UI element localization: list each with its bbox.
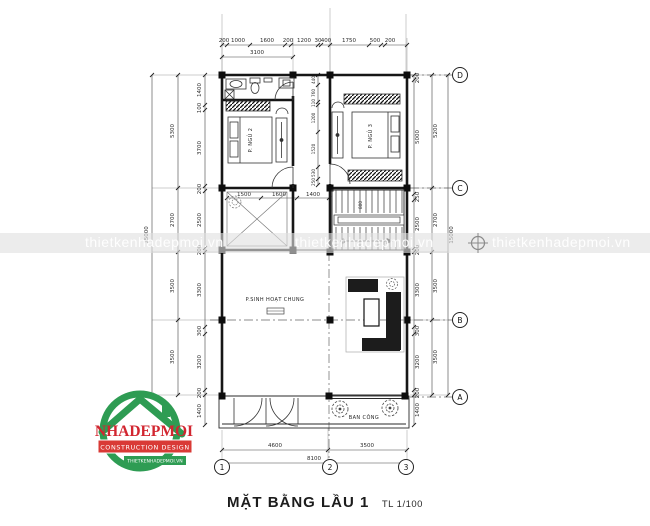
- company-logo: NHADEPMOI CONSTRUCTION DESIGN THIETKENHA…: [88, 382, 203, 477]
- dim-label: 760: [311, 89, 316, 97]
- dim-label: 250: [415, 191, 421, 202]
- stair-treads-upper: [336, 190, 402, 213]
- bedroom2-label: P. NGỦ 2: [246, 128, 254, 153]
- dim-label: 4600: [268, 443, 282, 449]
- dim-label: 3300: [415, 283, 421, 297]
- logo-subtitle: CONSTRUCTION DESIGN: [100, 444, 189, 452]
- plant-icon: [387, 279, 398, 290]
- sofa-top: [348, 279, 378, 292]
- dim-label: 3500: [433, 279, 439, 293]
- dim-label: 1520: [311, 143, 316, 154]
- bedroom-2: [226, 101, 293, 188]
- dim-label: 3500: [170, 279, 176, 293]
- dim-label: 5000: [415, 130, 421, 144]
- axis-bubble-label: A: [457, 393, 463, 402]
- dim-label: 200: [283, 38, 294, 44]
- dim-label: 1400: [197, 83, 203, 97]
- dim-label: 200: [219, 38, 230, 44]
- logo-name: NHADEPMOI: [95, 423, 193, 440]
- dim-label: 2700: [170, 213, 176, 227]
- pillow: [391, 136, 399, 152]
- dim-label: 3200: [415, 355, 421, 369]
- drawing-title: MẶT BẰNG LẦU 1: [227, 494, 369, 511]
- stair-landing: [334, 215, 404, 225]
- floor-plan-page: 200 1000 1600 200 1200 30 400 1750 500 2…: [0, 0, 650, 526]
- chair: [332, 102, 344, 108]
- axis-bubble-label: 2: [328, 463, 333, 472]
- crosshair-icon: [466, 233, 490, 253]
- logo-website: THIETKENHADEPMOI.VN: [126, 459, 182, 465]
- dim-label: 3500: [170, 350, 176, 364]
- dim-label: 300: [197, 325, 203, 336]
- dim-label: 1750: [342, 38, 356, 44]
- dim-label: 1600: [272, 192, 286, 198]
- balcony-label: BAN CÔNG: [349, 414, 379, 421]
- dim-label: 200: [415, 387, 421, 398]
- door-swing: [234, 398, 262, 426]
- bedroom3-door-swing: [330, 164, 350, 184]
- plant-icon: [382, 400, 398, 416]
- pillow: [230, 122, 238, 138]
- washer-cross: [225, 90, 234, 99]
- wardrobe-2: [348, 170, 402, 181]
- wardrobe: [226, 101, 270, 111]
- dim-label: 530: [311, 169, 316, 177]
- pillow: [230, 141, 238, 157]
- dim-label: 3700: [197, 141, 203, 155]
- dim-label: 1400: [306, 192, 320, 198]
- dim-label: 1200: [297, 38, 311, 44]
- dim-label: 1400: [415, 403, 421, 417]
- drawing-scale: TL 1/100: [382, 499, 423, 510]
- wardrobe: [344, 94, 400, 104]
- dim-label: 3500: [360, 443, 374, 449]
- toilet-bowl: [251, 83, 259, 94]
- dim-label: 200: [197, 183, 203, 194]
- dim-label: 800: [358, 201, 363, 209]
- pillow: [391, 116, 399, 132]
- bed: [352, 112, 400, 158]
- chair: [276, 108, 288, 114]
- sofa-bottom: [362, 338, 400, 351]
- living-label: P.SINH HOẠT CHUNG: [246, 297, 305, 303]
- dim-label: 8100: [307, 456, 321, 462]
- watermark-text: thietkenhadepmoi.vn: [492, 234, 631, 250]
- bedroom-3: [330, 94, 402, 184]
- dim-label: 5200: [433, 124, 439, 138]
- shelf: [264, 78, 272, 82]
- dim-label: 3500: [433, 350, 439, 364]
- axis-bubble-label: 1: [220, 463, 225, 472]
- dim-label: 100: [197, 102, 203, 113]
- dim-label: 440: [311, 76, 316, 84]
- dim-label: 2500: [415, 217, 421, 231]
- axis-bubble-label: D: [457, 71, 463, 80]
- dim-label: 400: [321, 38, 332, 44]
- axis-bubble-label: 3: [404, 463, 409, 472]
- dim-label: 3100: [250, 50, 264, 56]
- door-leaves: [234, 398, 298, 424]
- axis-bubble-label: B: [457, 316, 462, 325]
- dim-label: 1500: [237, 192, 251, 198]
- balcony: [234, 398, 398, 426]
- bedroom3-label: P. NGỦ 3: [366, 124, 374, 149]
- dim-label: 250: [311, 178, 316, 186]
- sink-basin: [230, 81, 242, 88]
- dim-label: 1000: [231, 38, 245, 44]
- watermark-text: thietkenhadepmoi.vn: [295, 234, 434, 250]
- watermark-text: thietkenhadepmoi.vn: [85, 234, 224, 250]
- living-room: [267, 277, 404, 352]
- dim-label: 3200: [197, 355, 203, 369]
- dim-label: 300: [415, 325, 421, 336]
- dim-label: 1200: [311, 112, 316, 123]
- dim-label: 500: [370, 38, 381, 44]
- dim-label: 110: [311, 99, 316, 107]
- axis-bubble-label: C: [457, 184, 462, 193]
- coffee-table: [364, 299, 379, 326]
- plant-icon: [332, 401, 348, 417]
- watermark-band: thietkenhadepmoi.vn thietkenhadepmoi.vn …: [0, 233, 650, 253]
- dim-label: 2500: [197, 213, 203, 227]
- dim-label: 2700: [433, 213, 439, 227]
- bathroom: [225, 78, 294, 100]
- dim-label: 3300: [197, 283, 203, 297]
- drawing-title-block: MẶT BẰNG LẦU 1 TL 1/100: [0, 494, 650, 512]
- dim-label: 5300: [170, 124, 176, 138]
- dim-label: 200: [415, 72, 421, 83]
- dim-label: 200: [385, 38, 396, 44]
- dim-label: 1600: [260, 38, 274, 44]
